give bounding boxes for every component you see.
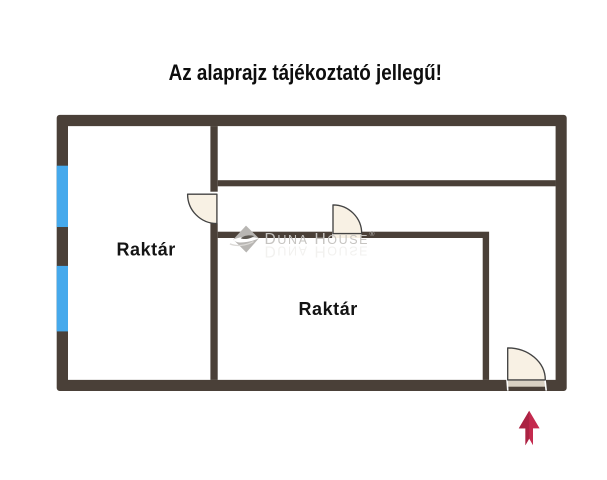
svg-text:Az alaprajz tájékoztató jelleg: Az alaprajz tájékoztató jellegű!: [169, 60, 442, 85]
svg-text:Raktár: Raktár: [117, 239, 176, 259]
svg-text:®: ®: [370, 230, 375, 238]
svg-text:Raktár: Raktár: [299, 299, 358, 319]
svg-text:DUNA HOUSE: DUNA HOUSE: [265, 242, 368, 259]
